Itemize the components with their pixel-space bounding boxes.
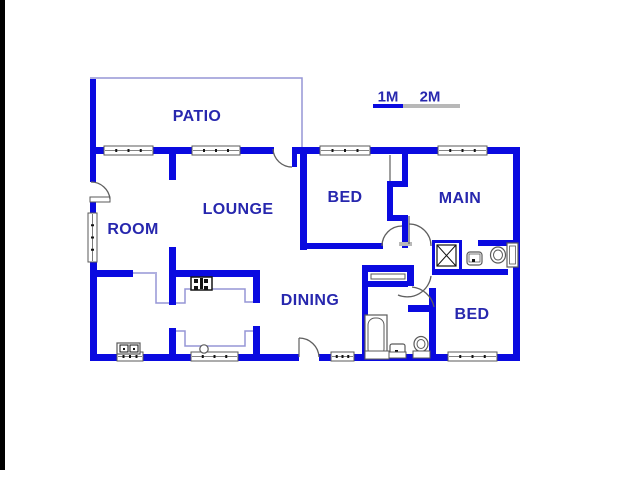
window-tick [449, 149, 451, 152]
window-tick [472, 355, 474, 358]
window-tick [203, 149, 205, 152]
wall-segment [90, 79, 96, 148]
window-tick [91, 237, 94, 239]
stove-center [200, 278, 203, 289]
outline-thin [176, 331, 253, 346]
window-tick [332, 149, 334, 152]
window-tick [227, 149, 229, 152]
wall-segment [153, 147, 192, 154]
wall-segment [407, 272, 414, 286]
stove-burner [194, 286, 198, 290]
wall-segment [92, 270, 133, 277]
toilet-icon [414, 337, 428, 352]
window-tick [136, 355, 138, 358]
window-tick [225, 355, 227, 358]
wall-segment [408, 305, 436, 312]
wall-segment [370, 147, 438, 154]
window-tick [459, 355, 461, 358]
wall-segment [367, 265, 414, 272]
outline-thin [156, 274, 169, 303]
room-label-dining-5: DINING [281, 292, 339, 310]
window-tick [215, 149, 217, 152]
floor-plan-page: PATIOLOUNGEROOMBEDMAINDININGBED1M2M [0, 0, 640, 480]
door-swing-arc [299, 338, 319, 357]
window-tick [474, 149, 476, 152]
kitchen-sink-icon [200, 345, 208, 353]
window-tick [342, 355, 344, 358]
room-label-bed-6: BED [455, 306, 490, 324]
window-tick [484, 355, 486, 358]
window-tick [115, 149, 117, 152]
window-tick [129, 355, 131, 358]
window-tick [202, 355, 204, 358]
door-leaf [90, 197, 110, 202]
room-label-patio-0: PATIO [173, 108, 222, 126]
bathtub-basin [368, 318, 384, 356]
wall-segment [402, 154, 408, 185]
room-label-main-4: MAIN [439, 190, 481, 208]
wall-segment [169, 328, 176, 358]
room-label-lounge-1: LOUNGE [203, 201, 274, 219]
window-tick [128, 149, 130, 152]
linen-closet [371, 274, 405, 279]
room-label-bed-3: BED [328, 189, 363, 207]
scale-mark-label-2m: 2M [420, 89, 441, 106]
door-swing-arc [91, 182, 110, 199]
sink-drain [123, 348, 125, 350]
window-tick [140, 149, 142, 152]
toilet-base [413, 351, 430, 358]
stove-burner [204, 286, 208, 290]
door-hinge [399, 242, 412, 246]
wall-segment [429, 288, 436, 361]
window-tick [91, 249, 94, 251]
wall-segment [497, 354, 519, 361]
door-swing-arc [273, 149, 292, 167]
wall-segment [253, 270, 260, 303]
toilet-icon [491, 247, 506, 263]
wall-segment [292, 147, 297, 167]
door-swing-arc [409, 224, 431, 246]
window-tick [462, 149, 464, 152]
window-tick [336, 355, 338, 358]
stove-burner [204, 279, 208, 283]
window-tick [344, 149, 346, 152]
window-tick [347, 355, 349, 358]
wall-segment [176, 270, 258, 277]
outline-thin [176, 289, 253, 303]
wall-segment [300, 243, 383, 249]
stove-burner [194, 279, 198, 283]
vanity-base [389, 352, 406, 358]
basin-drain [472, 259, 475, 262]
wall-segment [253, 326, 260, 358]
room-label-room-2: ROOM [107, 221, 158, 239]
wall-segment [367, 281, 408, 287]
window-tick [91, 224, 94, 226]
wall-segment [169, 247, 176, 305]
bathtub-base [365, 351, 389, 359]
toilet-tank [507, 243, 518, 267]
window-tick [123, 355, 125, 358]
wall-segment [90, 147, 96, 182]
scale-mark-label-1m: 1M [378, 89, 399, 106]
wall-segment [240, 147, 274, 154]
wall-segment [169, 154, 176, 180]
sink-drain [133, 348, 135, 350]
window-tick [214, 355, 216, 358]
wall-segment [300, 147, 307, 250]
page-edge-strip [0, 0, 5, 470]
window-tick [357, 149, 359, 152]
floor-plan-drawing [0, 0, 640, 480]
